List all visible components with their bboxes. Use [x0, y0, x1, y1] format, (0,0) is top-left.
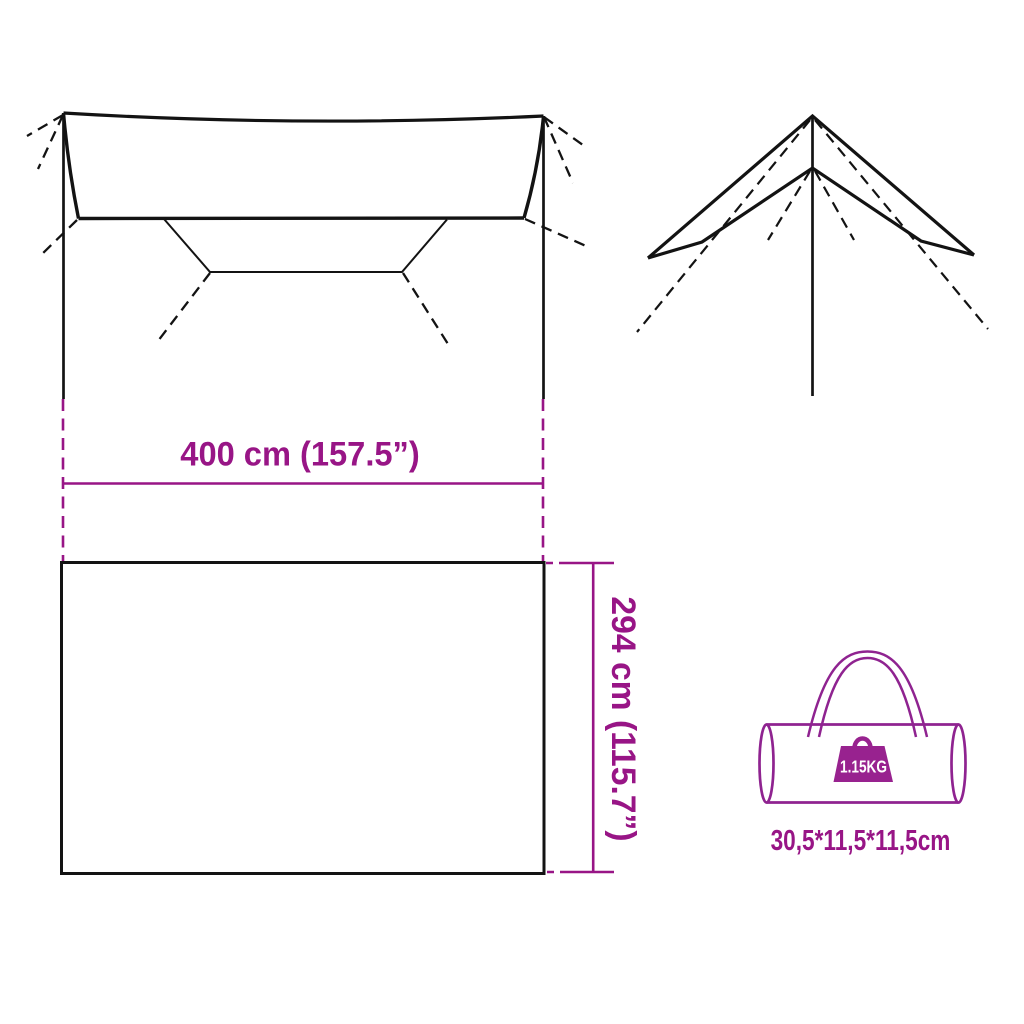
- svg-text:30,5*11,5*11,5cm: 30,5*11,5*11,5cm: [771, 823, 951, 856]
- svg-text:294 cm (115.7”): 294 cm (115.7”): [604, 596, 642, 841]
- svg-text:400 cm (157.5”): 400 cm (157.5”): [180, 436, 419, 474]
- svg-text:1.15KG: 1.15KG: [840, 758, 887, 777]
